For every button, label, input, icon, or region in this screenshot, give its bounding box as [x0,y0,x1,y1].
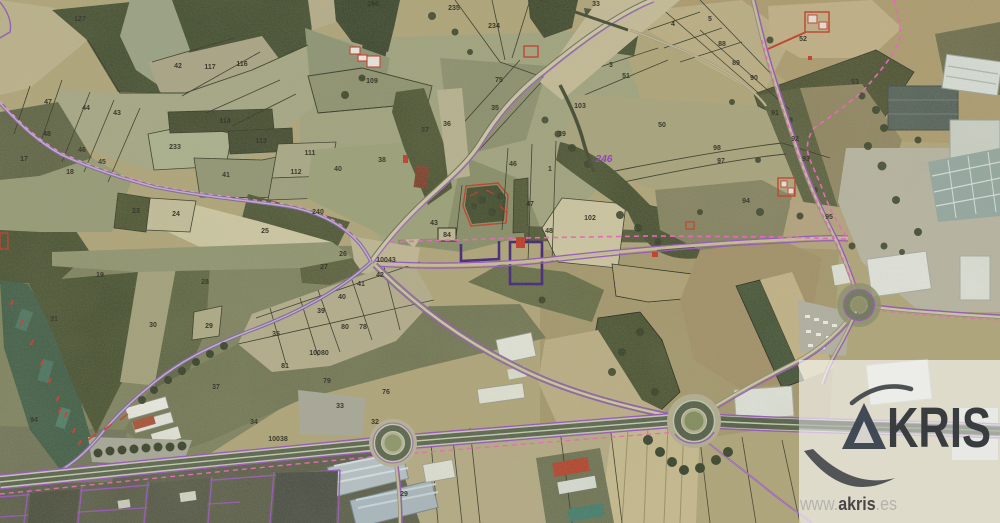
svg-text:KRIS: KRIS [887,396,991,460]
svg-text:www.akris.es: www.akris.es [799,494,897,514]
